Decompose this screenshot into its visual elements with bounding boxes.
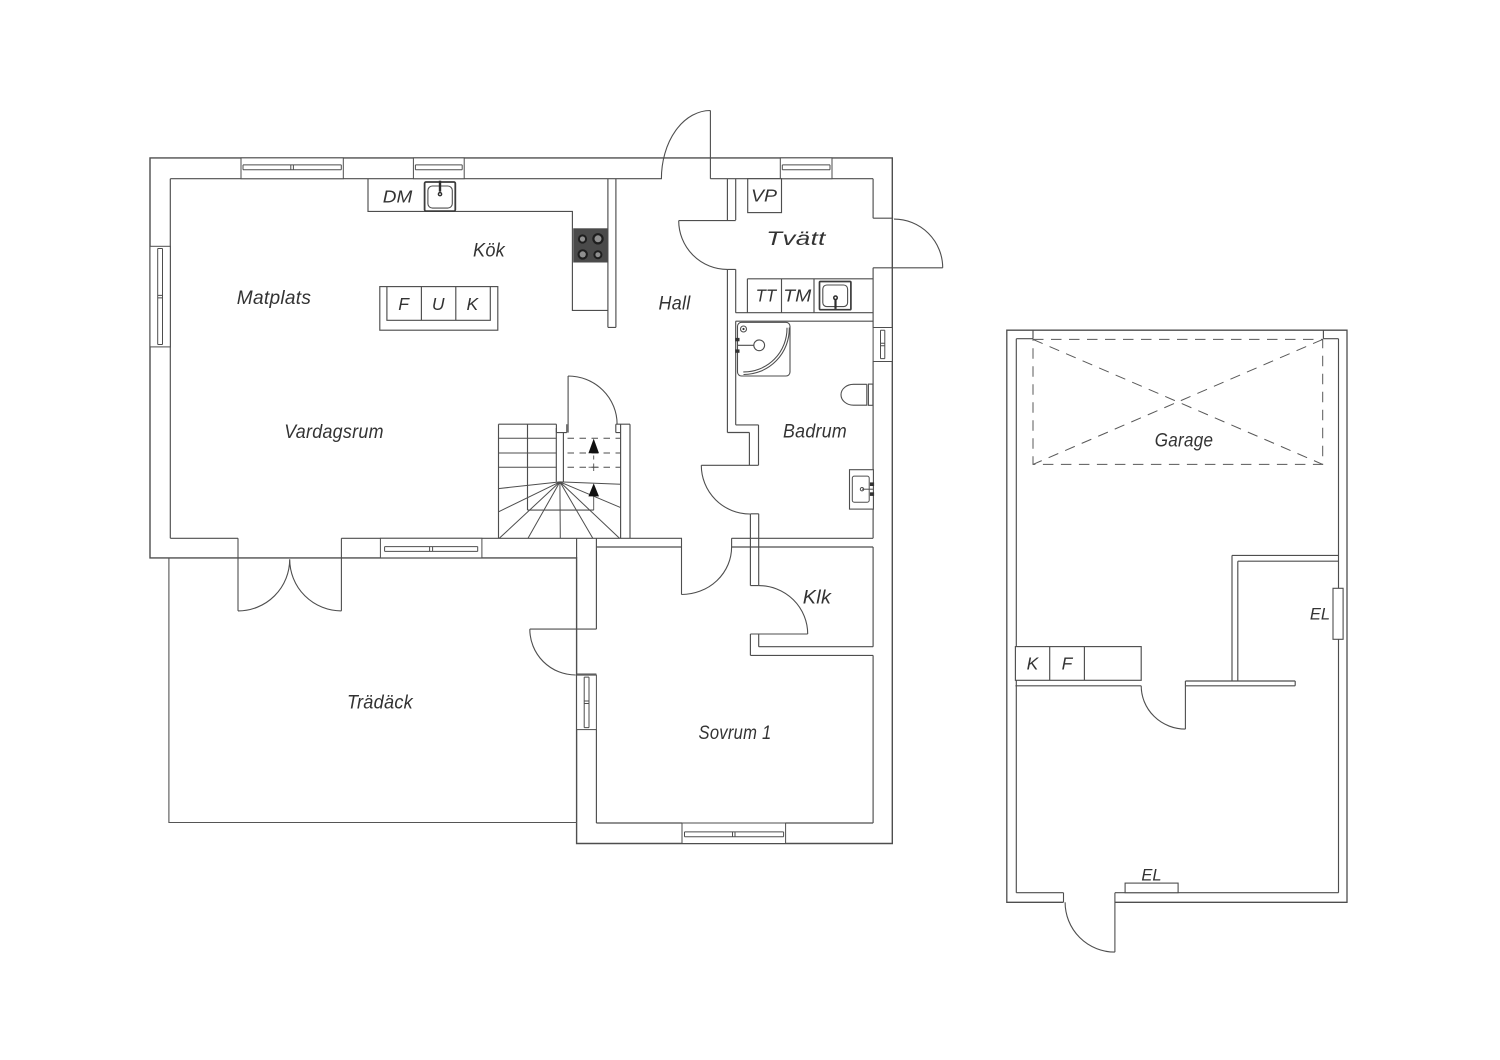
svg-text:Matplats: Matplats: [237, 287, 312, 309]
svg-text:U: U: [432, 294, 445, 314]
svg-text:VP: VP: [751, 186, 777, 206]
svg-text:EL: EL: [1310, 606, 1330, 624]
svg-text:K: K: [1027, 654, 1040, 674]
svg-text:TT: TT: [756, 286, 778, 306]
svg-text:DM: DM: [383, 187, 413, 207]
svg-text:EL: EL: [1141, 867, 1161, 885]
svg-text:Badrum: Badrum: [783, 421, 847, 443]
svg-text:Tvätt: Tvätt: [766, 228, 827, 250]
svg-text:K: K: [467, 294, 480, 314]
svg-text:Vardagsrum: Vardagsrum: [284, 421, 384, 443]
svg-text:Hall: Hall: [659, 293, 691, 315]
svg-text:Sovrum 1: Sovrum 1: [699, 722, 772, 744]
svg-text:Garage: Garage: [1155, 430, 1214, 452]
svg-text:F: F: [1062, 654, 1074, 674]
svg-text:TM: TM: [783, 286, 811, 306]
svg-text:Klk: Klk: [803, 587, 832, 609]
svg-text:F: F: [398, 294, 410, 314]
svg-text:Kök: Kök: [473, 240, 506, 262]
svg-text:Trädäck: Trädäck: [347, 692, 414, 714]
